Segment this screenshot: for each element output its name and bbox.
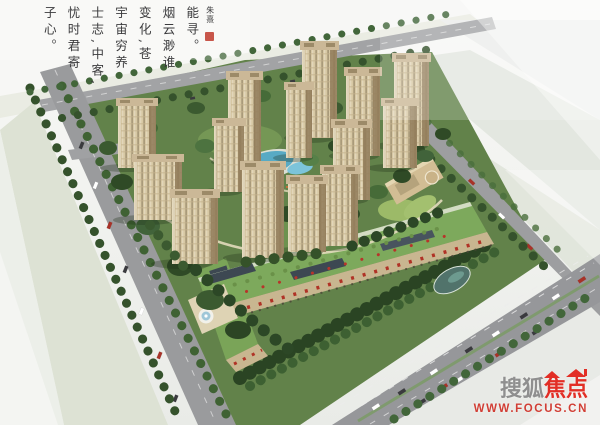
poem-column: 能寻。 <box>182 6 201 128</box>
roof-icon <box>544 371 560 378</box>
calligraphy-signature: 朱熹 <box>204 6 214 128</box>
sohu-brand-text: 搜狐 <box>500 376 544 401</box>
poem-column: 宇宙穷养 <box>110 6 129 128</box>
red-seal-stamp <box>205 32 214 41</box>
poem-column: 忧时君寄 <box>63 6 82 128</box>
poem-column: 烟云渺谁 <box>158 6 177 128</box>
poem-column: 变化,苍 <box>134 6 153 128</box>
watermark-brand: 搜狐焦点 <box>500 376 588 400</box>
chimney-icon <box>584 369 587 376</box>
focus-brand-wrap: 焦点 <box>544 376 588 400</box>
watermark-url: WWW.FOCUS.CN <box>474 403 588 415</box>
poem-column: 士志,中客, <box>87 6 106 128</box>
poem-column: 子心。 <box>39 6 58 128</box>
signature-text: 朱熹 <box>206 6 215 24</box>
focus-brand-text: 焦点 <box>544 376 588 401</box>
focus-watermark: 搜狐焦点 WWW.FOCUS.CN <box>474 376 588 415</box>
poster-canvas: 朱熹 能寻。 烟云渺谁 变化,苍 宇宙穷养 士志,中客, 忧时君寄 子心。 搜狐… <box>0 0 600 425</box>
roof-icon <box>566 369 586 377</box>
calligraphy-poem: 朱熹 能寻。 烟云渺谁 变化,苍 宇宙穷养 士志,中客, 忧时君寄 子心。 <box>34 6 215 128</box>
